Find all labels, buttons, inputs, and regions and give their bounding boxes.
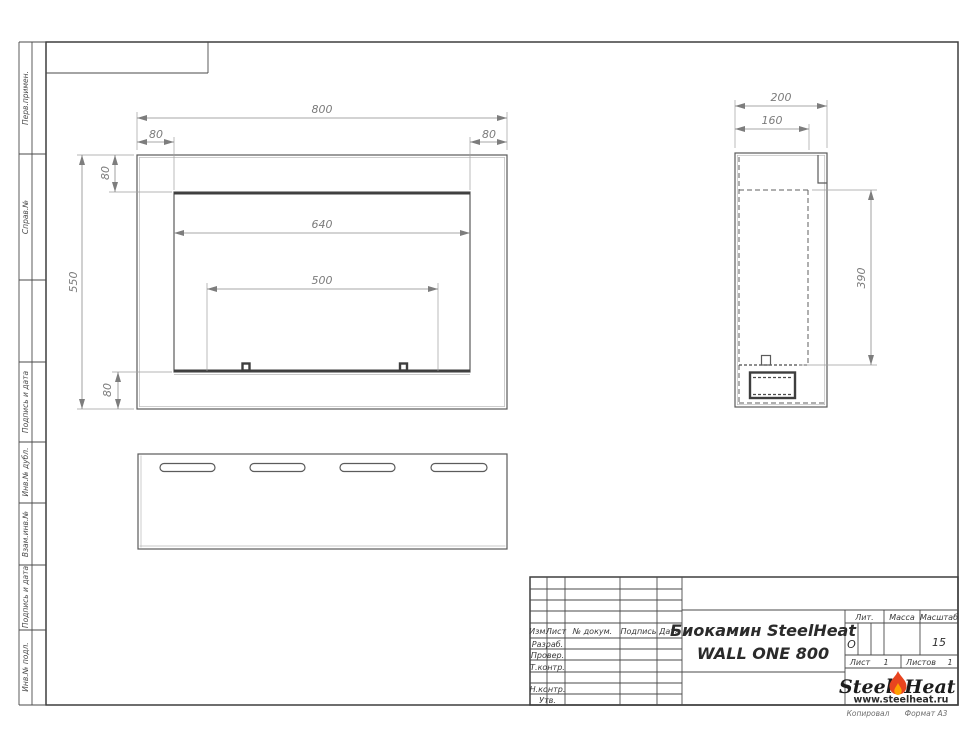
dim-label-550: 550 [67,272,80,293]
stamp-perv-primen: Перв.примен. [21,71,30,125]
dim-label-80-left-top: 80 [99,166,112,180]
dim-label-80-top-right: 80 [482,128,496,141]
dim-label-640: 640 [312,218,333,231]
side-view-dimensions: 200 160 390 [735,91,877,365]
tb-listov-label: Листов [905,658,936,667]
burner-clip-right [400,364,407,371]
margin-stamps: Перв.примен. Справ.№ Подпись и дата Инв.… [19,71,46,692]
stamp-inv-podl: Инв.№ подл. [21,642,30,691]
format-note: Формат А3 [905,709,948,718]
dim-label-500: 500 [312,274,333,287]
corner-designation-box [46,42,208,73]
front-view-dimensions: 800 80 80 640 500 550 80 80 [67,103,507,409]
tb-row-prover: Провер. [531,651,564,660]
dim-label-800: 800 [312,103,333,116]
burner-clip-left [243,364,250,371]
dim-label-80-top-left: 80 [149,128,163,141]
footer-notes: Копировал Формат А3 [847,709,948,718]
title-block: Изм. Лист № докум. Подпись Дата Разраб. … [529,577,958,706]
stamp-podpis-data-1: Подпись и дата [21,371,30,434]
dim-label-160: 160 [762,114,783,127]
dim-label-390: 390 [855,268,868,289]
tb-row-tkontr: Т.контр. [530,663,565,672]
steelheat-logo: Steel Heat www.steelheat.ru [839,671,956,706]
tb-col-podpis: Подпись [621,627,657,636]
copied-note: Копировал [847,709,890,718]
tb-col-list: Лист [545,627,567,636]
tb-row-razrab: Разраб. [532,640,563,649]
doc-title-line1: Биокамин SteelHeat [670,621,857,640]
tb-row-utv: Утв. [539,696,556,705]
tb-massa-label: Масса [889,613,915,622]
logo-url: www.steelheat.ru [854,695,949,706]
tb-lit-value: О [847,638,856,651]
burner-nozzle [762,356,771,366]
tb-list-value: 1 [883,658,888,667]
vent-slot-4 [431,464,487,472]
tb-lit-label: Лит. [854,613,873,622]
tb-masshtab-label: Масштаб [920,613,958,622]
tb-listov-value: 1 [947,658,952,667]
sheet-frame [19,42,958,705]
drawing-sheet: Перв.примен. Справ.№ Подпись и дата Инв.… [0,0,970,749]
tb-list-label: Лист [849,658,871,667]
stamp-vzam-inv: Взам.инв.№ [21,511,30,557]
stamp-sprav-no: Справ.№ [21,200,30,234]
doc-title-line2: WALL ONE 800 [697,644,829,663]
tb-row-nkontr: Н.контр. [530,685,566,694]
side-view [735,153,827,407]
vent-slot-2 [250,464,305,472]
dim-label-80-left-bottom: 80 [101,383,114,397]
tb-masshtab-value: 15 [932,636,946,649]
stamp-inv-dubl: Инв.№ дубл. [21,448,30,497]
vent-slot-3 [340,464,395,472]
tb-col-docnum: № докум. [572,627,612,636]
stamp-podpis-data-2: Подпись и дата [21,566,30,629]
bottom-view [138,454,507,549]
dim-label-200: 200 [771,91,792,104]
vent-slot-1 [160,464,215,472]
